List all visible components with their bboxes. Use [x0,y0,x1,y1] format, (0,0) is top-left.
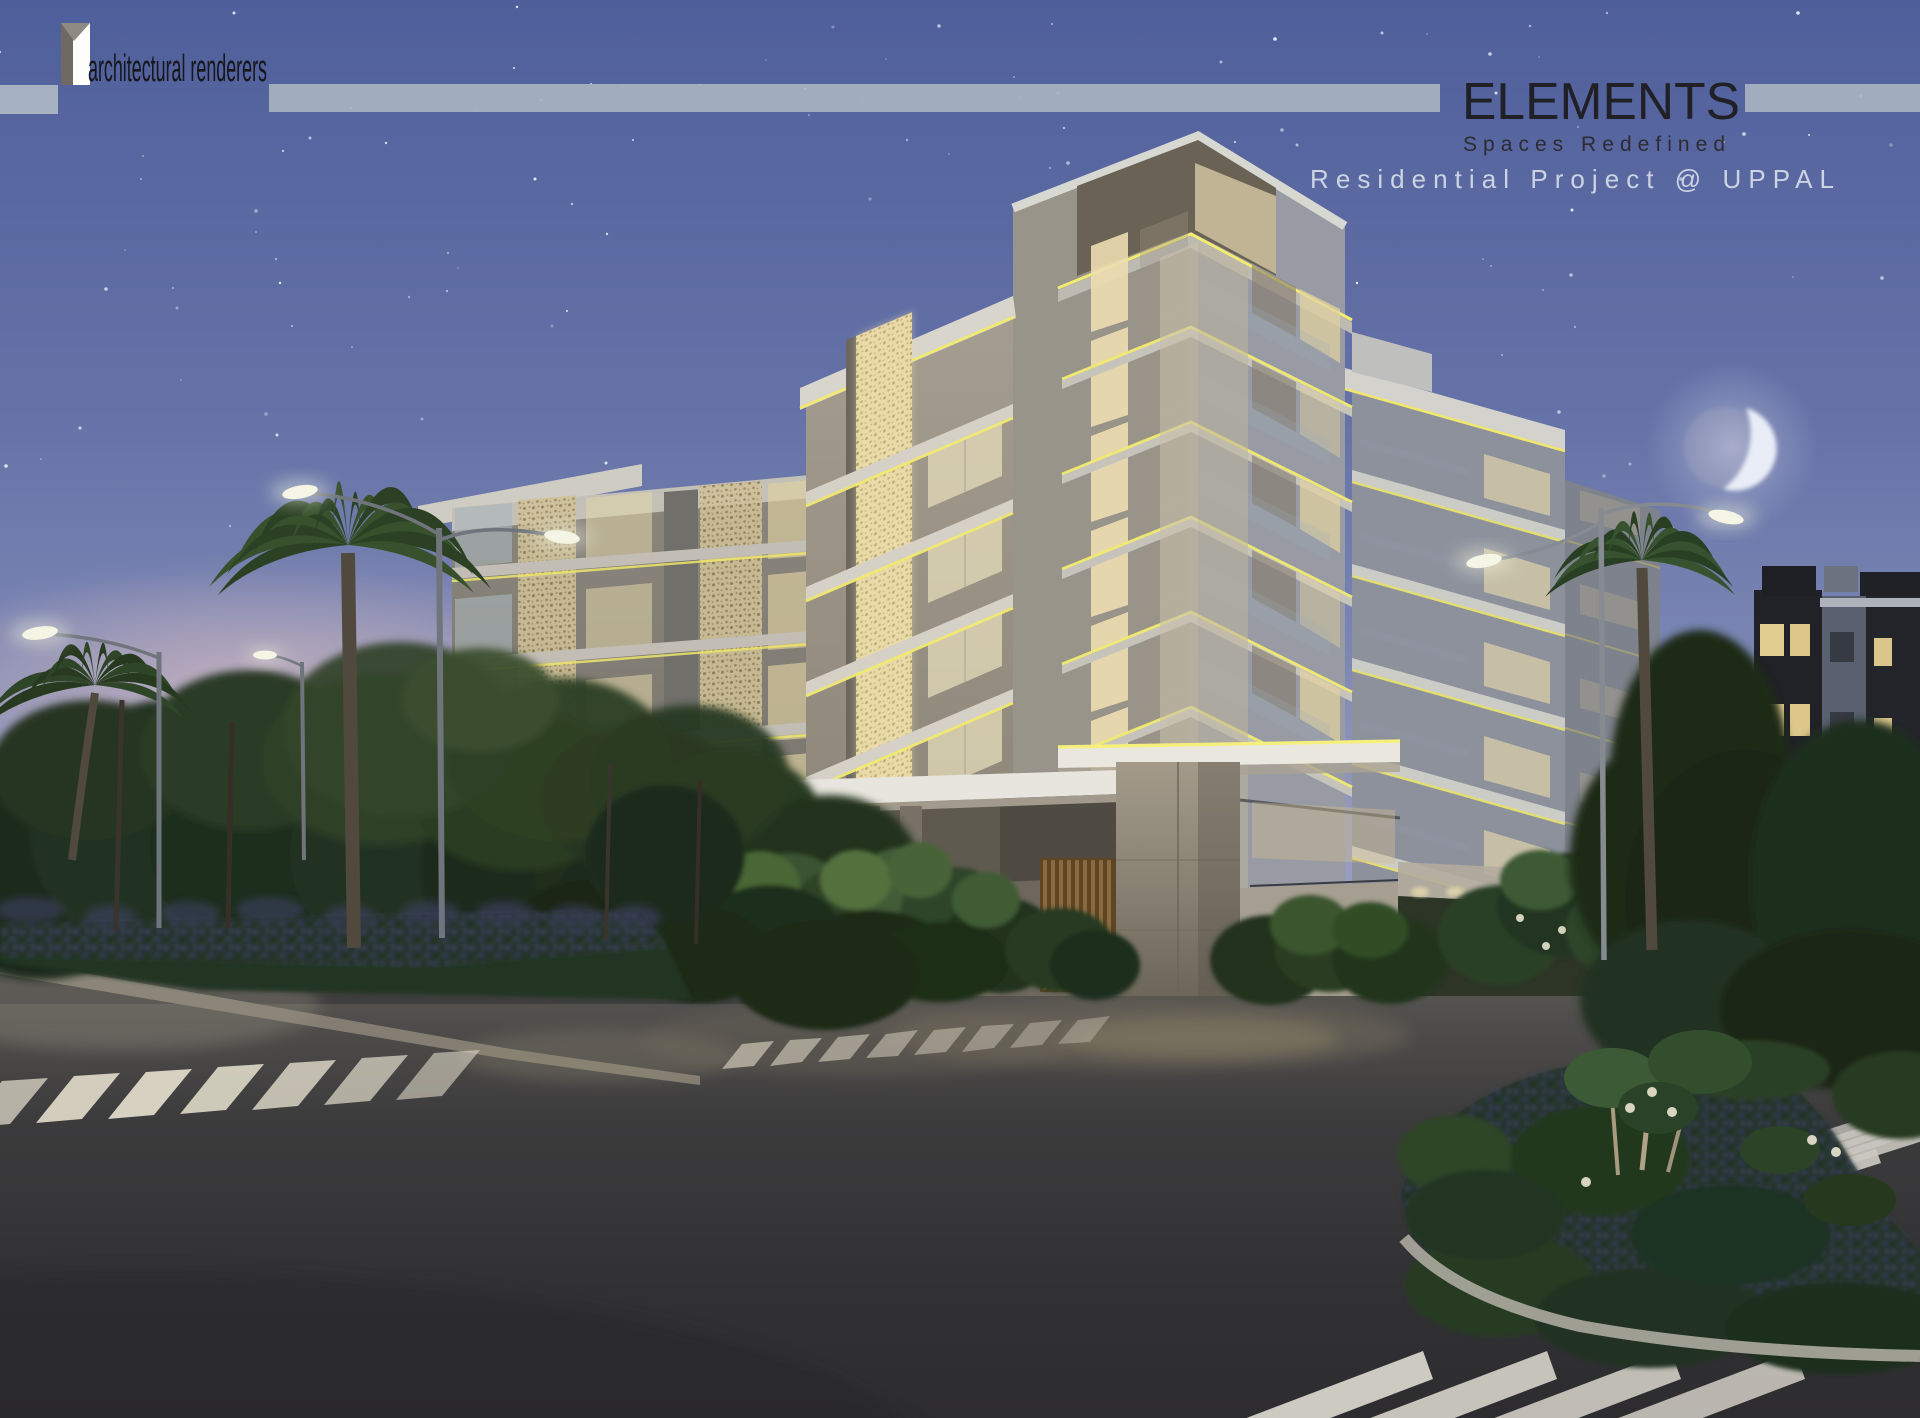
svg-text:architectural renderers: architectural renderers [88,48,267,90]
svg-text:Spaces Redefined: Spaces Redefined [1463,133,1725,156]
svg-text:ELEMENTS: ELEMENTS [1462,73,1740,131]
